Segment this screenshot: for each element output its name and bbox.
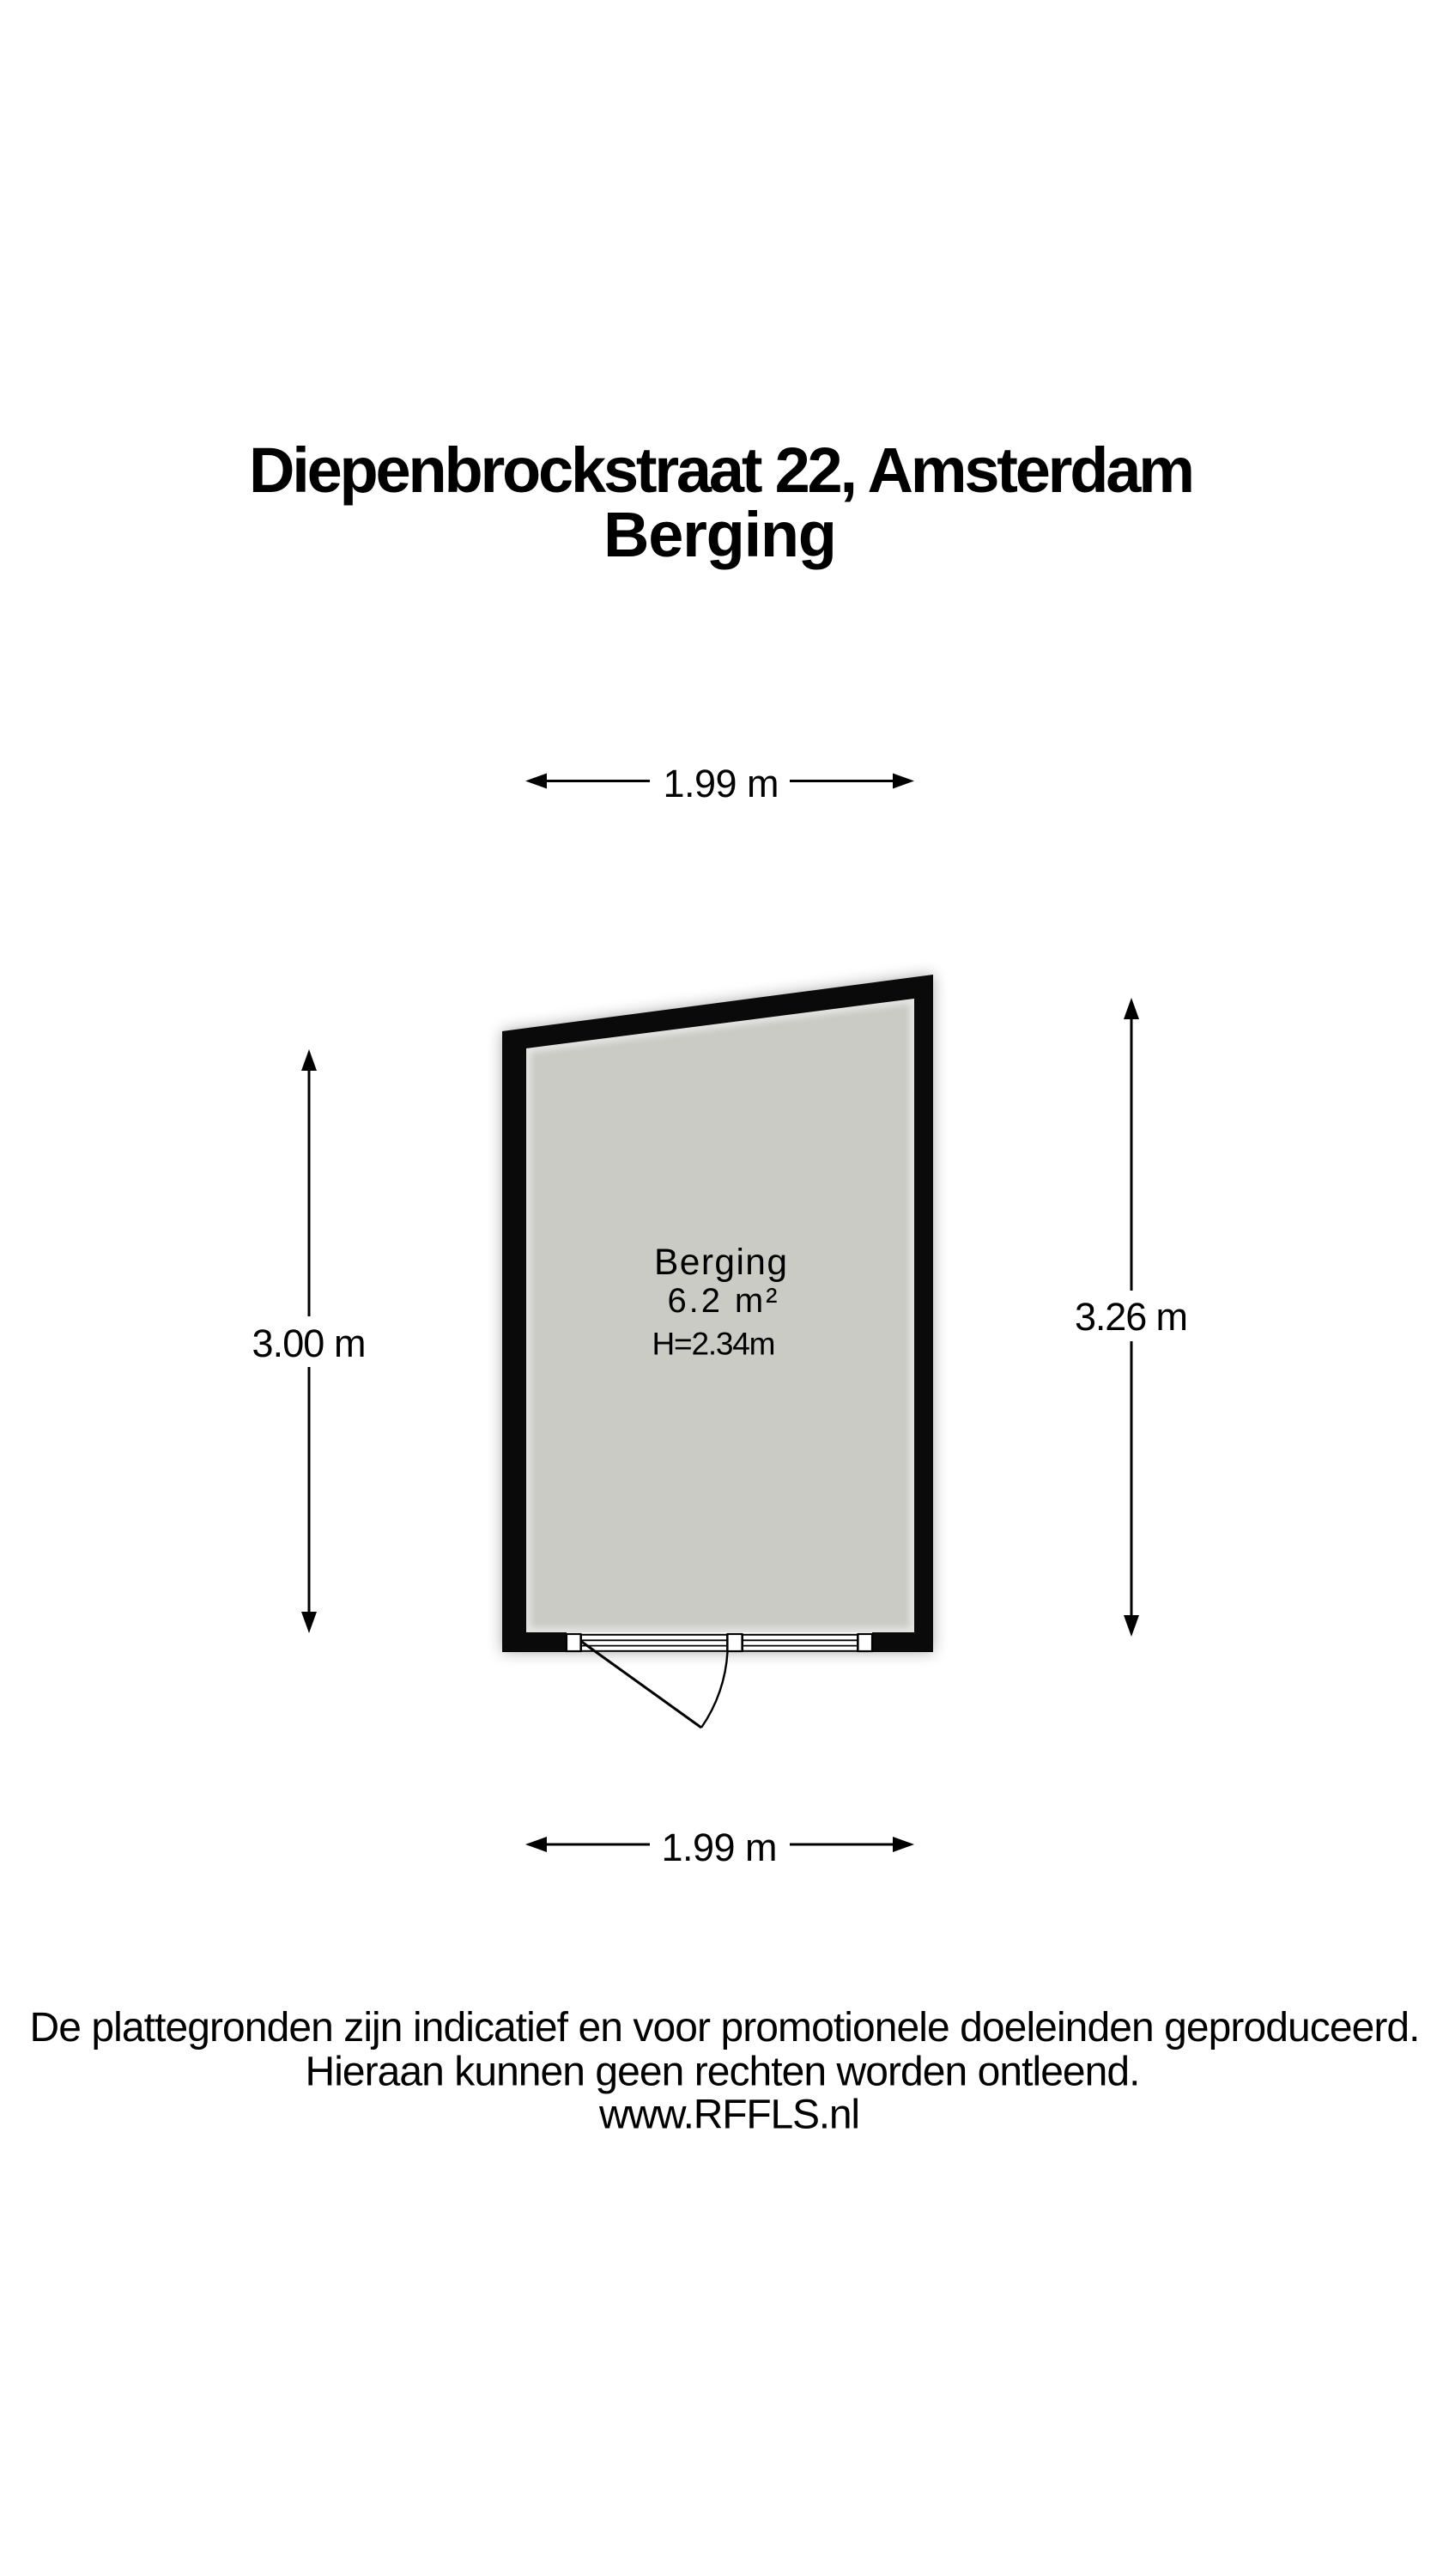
svg-text:www.RFFLS.nl: www.RFFLS.nl <box>598 2093 860 2138</box>
svg-text:1.99 m: 1.99 m <box>662 1826 778 1869</box>
svg-text:3.26 m: 3.26 m <box>1075 1295 1188 1339</box>
svg-text:Berging: Berging <box>603 499 837 570</box>
svg-text:Hieraan kunnen geen rechten wo: Hieraan kunnen geen rechten worden ontle… <box>306 2050 1141 2095</box>
svg-text:H=2.34m: H=2.34m <box>652 1327 776 1362</box>
svg-text:Diepenbrockstraat 22, Amsterda: Diepenbrockstraat 22, Amsterdam <box>249 434 1195 506</box>
svg-text:De plattegronden zijn indicati: De plattegronden zijn indicatief en voor… <box>30 2005 1421 2050</box>
svg-text:6.2 m²: 6.2 m² <box>668 1282 778 1320</box>
svg-text:1.99 m: 1.99 m <box>664 762 779 805</box>
svg-text:Berging: Berging <box>654 1242 787 1283</box>
svg-text:3.00 m: 3.00 m <box>252 1321 367 1365</box>
